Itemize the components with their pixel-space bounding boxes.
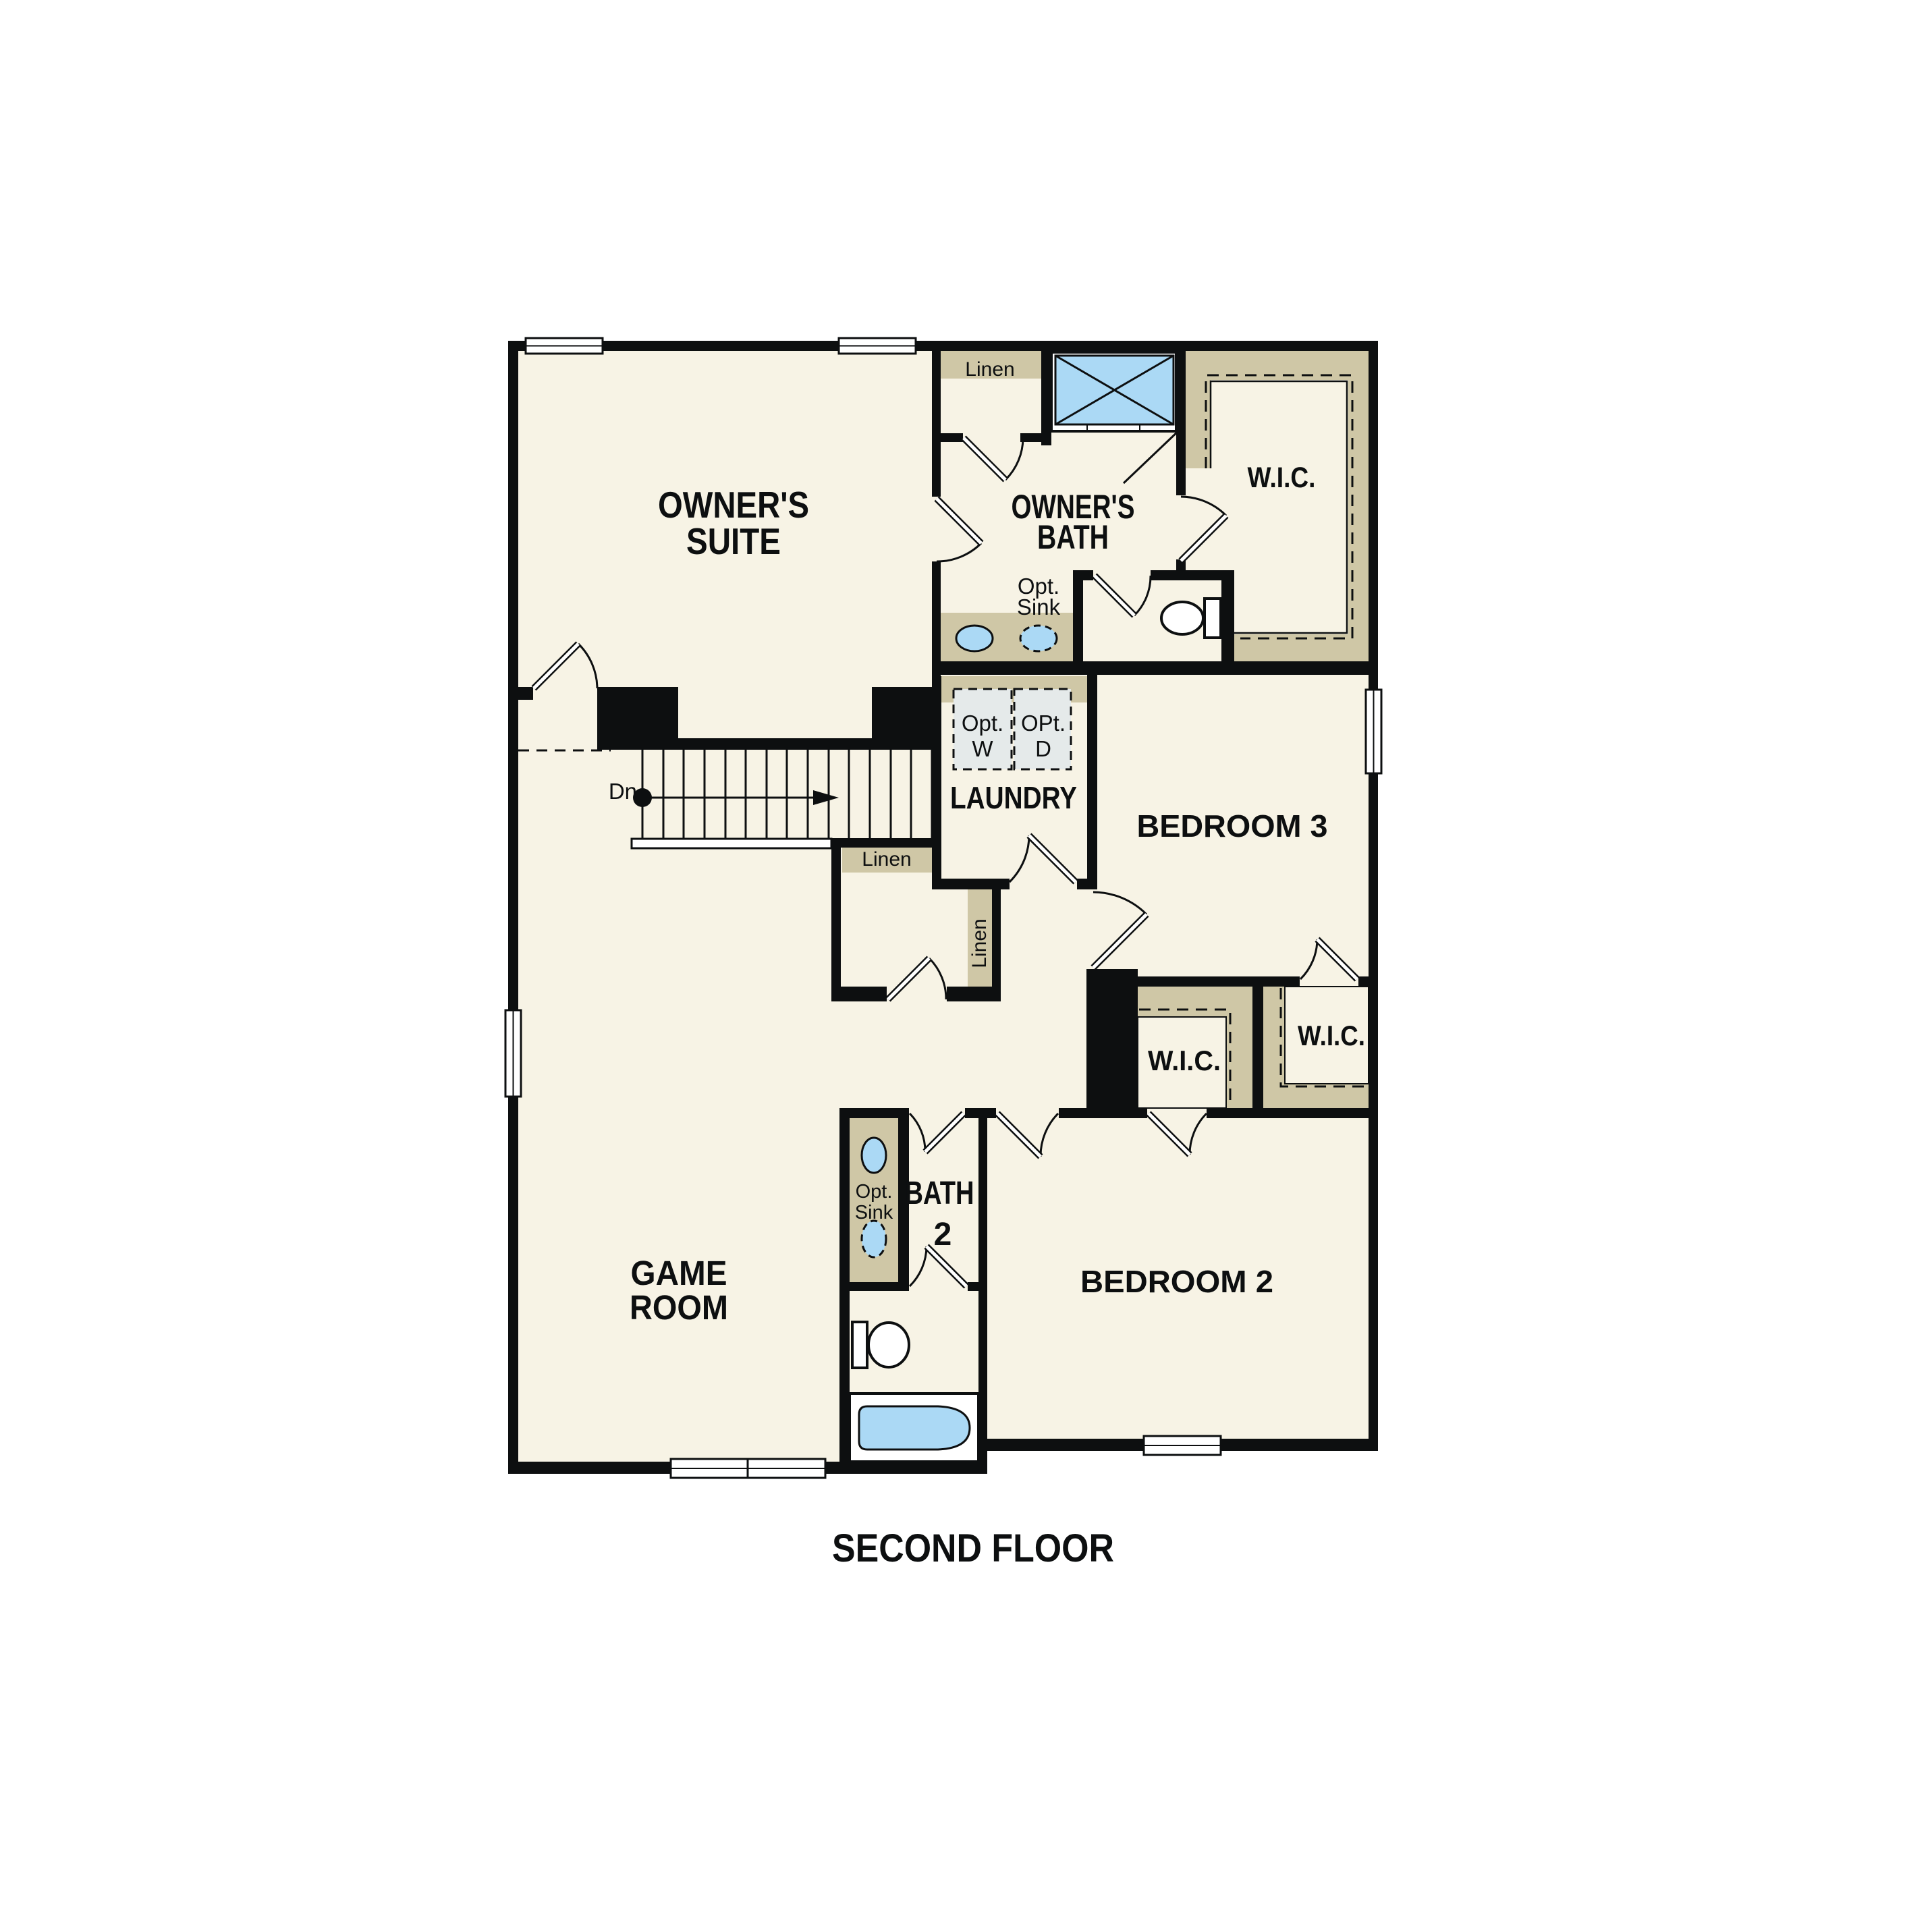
svg-text:Dn: Dn <box>609 779 637 804</box>
svg-text:W.I.C.: W.I.C. <box>1148 1045 1221 1076</box>
svg-text:W.I.C.: W.I.C. <box>1298 1020 1365 1051</box>
svg-text:SECOND FLOOR: SECOND FLOOR <box>832 1526 1114 1570</box>
svg-text:W.I.C.: W.I.C. <box>1248 462 1316 494</box>
svg-text:ROOM: ROOM <box>630 1288 728 1327</box>
svg-text:BATH: BATH <box>905 1176 974 1211</box>
svg-text:GAME: GAME <box>631 1254 727 1292</box>
svg-text:BEDROOM 3: BEDROOM 3 <box>1137 808 1328 844</box>
svg-text:Linen: Linen <box>965 358 1014 381</box>
svg-text:Opt.: Opt. <box>856 1181 893 1203</box>
svg-text:OWNER'S: OWNER'S <box>658 484 809 526</box>
svg-text:BATH: BATH <box>1037 518 1109 556</box>
svg-text:Sink: Sink <box>1017 595 1061 619</box>
svg-text:BEDROOM 2: BEDROOM 2 <box>1080 1264 1273 1299</box>
svg-text:OPt.: OPt. <box>1021 711 1066 736</box>
svg-text:D: D <box>1035 736 1051 761</box>
svg-text:2: 2 <box>934 1217 952 1252</box>
svg-text:Opt.: Opt. <box>962 711 1003 736</box>
svg-text:Linen: Linen <box>968 918 991 968</box>
svg-text:SUITE: SUITE <box>686 520 781 562</box>
svg-text:Sink: Sink <box>855 1202 893 1223</box>
svg-text:Linen: Linen <box>862 848 911 871</box>
svg-text:LAUNDRY: LAUNDRY <box>950 780 1077 815</box>
svg-text:W: W <box>972 736 993 761</box>
